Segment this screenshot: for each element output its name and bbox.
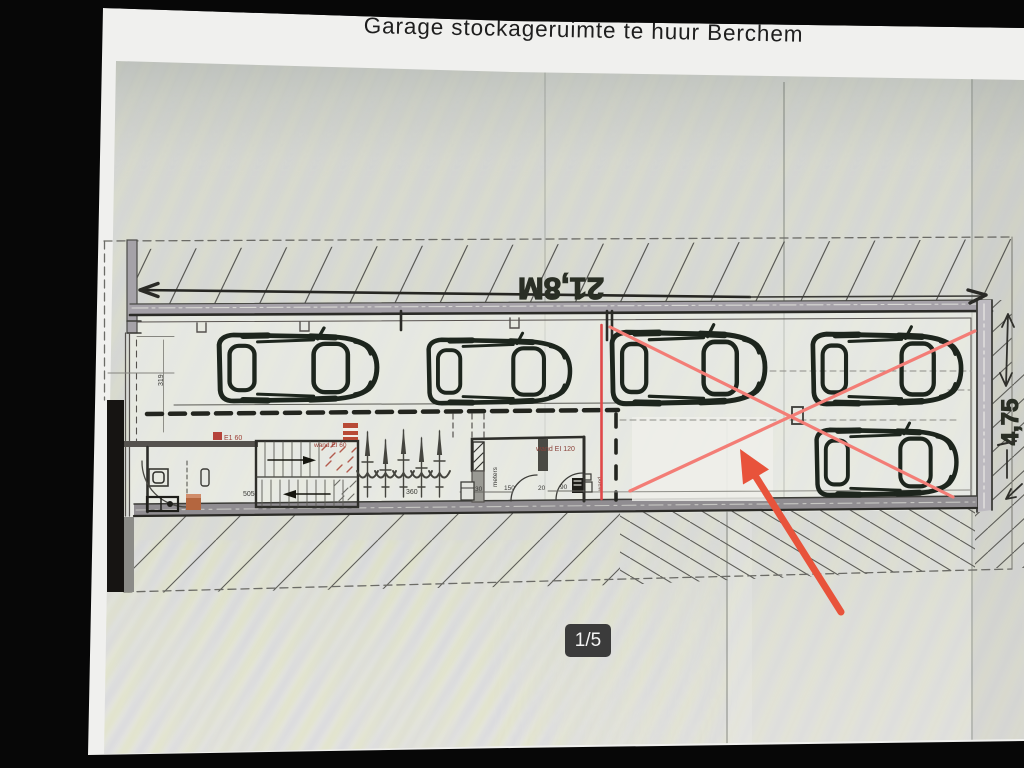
svg-text:150: 150 bbox=[504, 485, 515, 492]
svg-text:360: 360 bbox=[406, 489, 418, 496]
svg-text:90: 90 bbox=[560, 484, 568, 491]
svg-text:wand EI 120: wand EI 120 bbox=[535, 446, 575, 453]
svg-text:21,8M: 21,8M bbox=[518, 271, 604, 306]
svg-text:4,75: 4,75 bbox=[997, 399, 1024, 446]
svg-text:319: 319 bbox=[158, 374, 165, 386]
svg-text:meters: meters bbox=[492, 466, 499, 487]
svg-text:30: 30 bbox=[475, 486, 483, 493]
svg-text:20: 20 bbox=[538, 485, 546, 492]
svg-text:E1 60: E1 60 bbox=[224, 435, 242, 442]
svg-text:wand EI 60: wand EI 60 bbox=[313, 442, 347, 449]
svg-text:505: 505 bbox=[243, 491, 255, 498]
